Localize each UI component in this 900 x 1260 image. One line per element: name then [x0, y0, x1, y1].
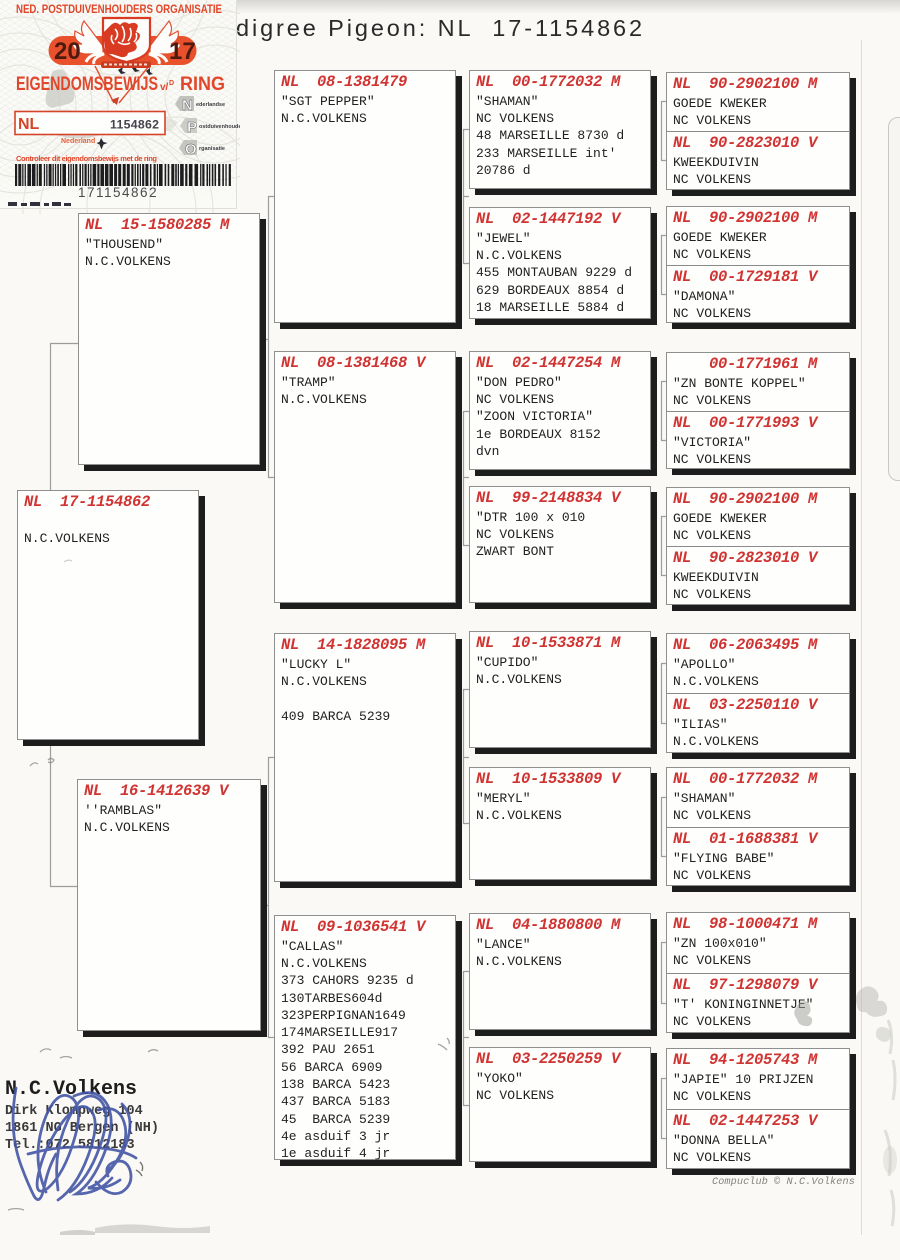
svg-text:D: D [169, 80, 174, 87]
svg-text:v/: v/ [160, 82, 169, 93]
svg-text:171154862: 171154862 [78, 185, 158, 200]
svg-text:20: 20 [54, 38, 81, 65]
svg-text:ostduivenhouders: ostduivenhouders [199, 124, 240, 130]
svg-text:NED. POSTDUIVENHOUDERS ORGANIS: NED. POSTDUIVENHOUDERS ORGANISATIE [16, 4, 222, 16]
svg-text:Nederland: Nederland [61, 138, 95, 145]
svg-text:RING: RING [180, 74, 225, 95]
svg-text:17: 17 [169, 38, 196, 65]
svg-text:rganisatie: rganisatie [199, 146, 225, 152]
svg-text:NL: NL [18, 116, 40, 133]
svg-text:N: N [182, 97, 193, 114]
svg-text:ederlandse: ederlandse [196, 102, 225, 108]
svg-text:Controleer dit eigendomsbewijs: Controleer dit eigendomsbewijs met de ri… [16, 154, 157, 163]
svg-text:EIGENDOMSBEWIJS: EIGENDOMSBEWIJS [16, 74, 158, 95]
svg-text:O: O [185, 141, 197, 158]
svg-text:P: P [187, 119, 197, 136]
svg-text:1154862: 1154862 [110, 118, 159, 132]
